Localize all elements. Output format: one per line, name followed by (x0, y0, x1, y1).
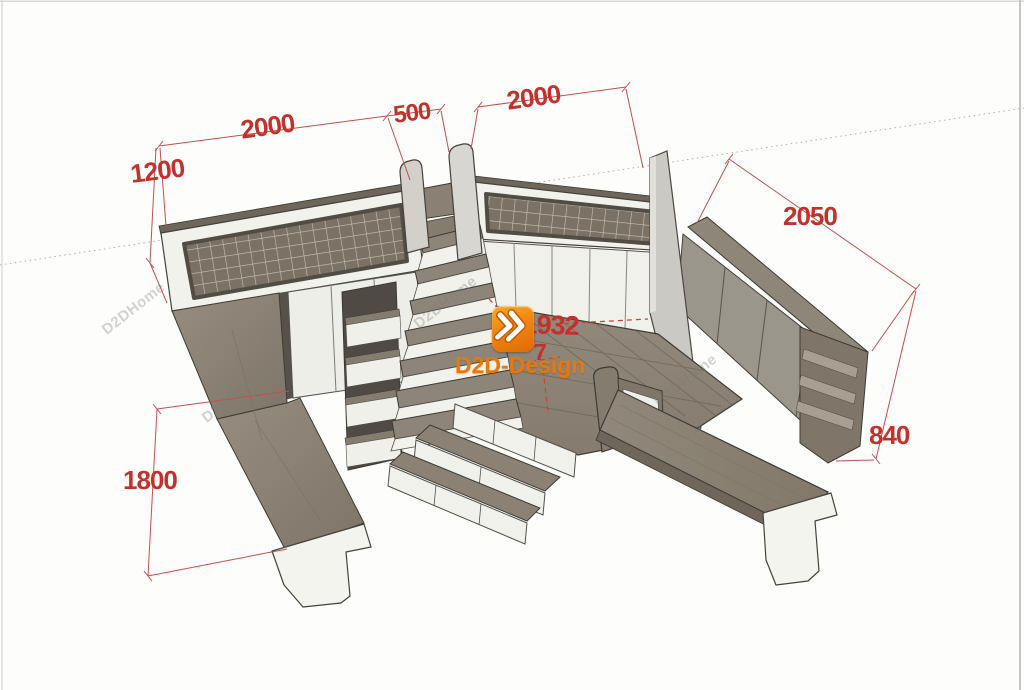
dim-right-bed-length: 2000 (505, 81, 562, 114)
double-chevron-icon (492, 306, 528, 346)
dim-left-bed-length: 2000 (239, 110, 296, 143)
understair-storage (342, 282, 402, 470)
design-render-page: 2000 500 2000 1200 2050 840 1800 1932 7 … (0, 0, 1024, 690)
dim-stair-gap-width: 500 (392, 99, 432, 127)
dim-left-desk-length: 1800 (123, 467, 177, 493)
d2d-logo-icon (492, 306, 534, 352)
dim-side-cabinet-length: 2050 (783, 203, 837, 229)
dim-guard-rail-height: 1200 (129, 154, 186, 186)
side-cabinet (677, 217, 868, 463)
dim-side-cabinet-height: 840 (869, 422, 909, 448)
d2d-logo-wordmark: D2D-Design (455, 352, 585, 379)
